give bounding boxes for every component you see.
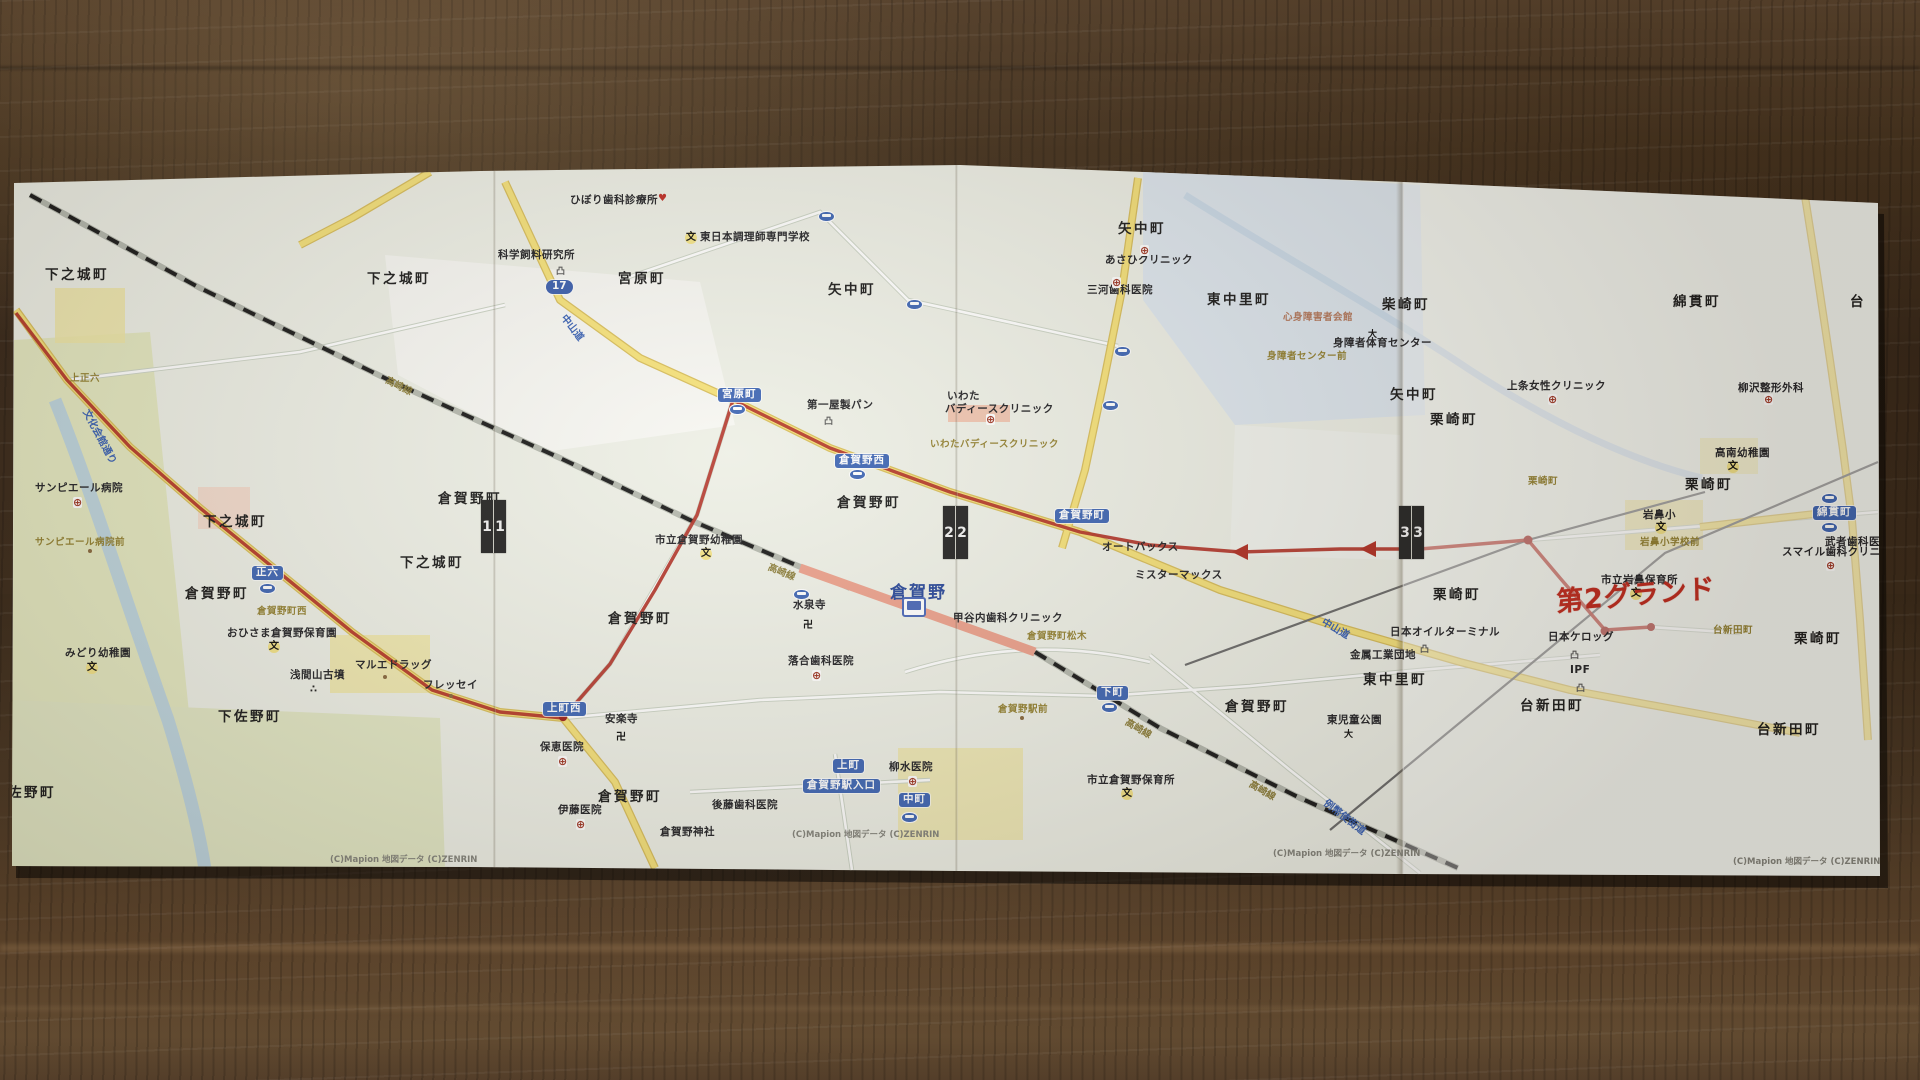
bus-stop-icon <box>729 404 746 415</box>
poi-label: フレッセイ <box>423 680 478 692</box>
bus-stop-name-label: 倉賀野町西 <box>257 607 307 617</box>
road-sign-badge: 綿貫町 <box>1813 506 1856 520</box>
fold-marker-digit: 1 <box>493 500 506 553</box>
poi-label: 柳水医院 <box>889 762 933 774</box>
temple-icon: 卍 <box>616 728 626 743</box>
poi-label: マルエドラッグ <box>355 660 432 672</box>
poi-label: 科学飼料研究所 <box>498 250 575 262</box>
bus-stop-name-label: 心身障害者会館 <box>1283 313 1353 323</box>
poi-label: 倉賀野神社 <box>660 827 715 839</box>
road-sign-badge: 上町 <box>833 759 864 773</box>
town-name-label: 下之城町 <box>203 515 267 530</box>
copyright-text: (C)Mapion 地図データ (C)ZENRIN <box>792 831 939 840</box>
poi-label: あさひクリニック <box>1105 255 1193 267</box>
poi-label: 東日本調理師専門学校 <box>700 232 810 244</box>
town-name-label: 東中里町 <box>1207 293 1271 308</box>
poi-label: 甲谷内歯科クリニック <box>953 613 1063 625</box>
school-icon: 文 <box>700 548 712 560</box>
hospital-icon: ⊕ <box>576 819 585 830</box>
bus-stop-name-label: いわたバディースクリニック <box>930 440 1059 450</box>
town-name-label: 下之城町 <box>45 268 109 283</box>
bus-stop-icon <box>849 469 866 480</box>
fold-marker-2: 22 <box>943 506 968 559</box>
town-name-label: 下佐野町 <box>218 710 282 725</box>
town-name-label: 栗崎町 <box>1430 413 1478 428</box>
hospital-icon: ⊕ <box>908 776 917 787</box>
poi-label: バディースクリニック <box>945 404 1054 416</box>
town-name-label: 東中里町 <box>1363 673 1427 688</box>
poi-label: サンピエール病院 <box>35 483 123 495</box>
road-sign-badge: 上町西 <box>543 702 586 716</box>
poi-label: 東児童公園 <box>1327 715 1382 727</box>
road-sign-badge: 下町 <box>1097 686 1128 700</box>
poi-label: 水泉寺 <box>793 600 826 612</box>
hospital-icon: ⊕ <box>812 670 821 681</box>
poi-label: 市立倉賀野保育所 <box>1087 775 1175 787</box>
bus-stop-icon <box>1102 400 1119 411</box>
park-icon: 大 <box>1344 727 1353 740</box>
school-icon: 文 <box>685 232 697 244</box>
fold-marker-digit: 2 <box>955 506 968 559</box>
poi-label: 保恵医院 <box>540 742 584 754</box>
poi-label: おひさま倉賀野保育園 <box>227 628 337 640</box>
bus-stop-name-label: 身障者センター前 <box>1267 352 1347 362</box>
bus-stop-icon <box>906 299 923 310</box>
poi-label: 金属工業団地 <box>1350 650 1416 662</box>
school-icon: 文 <box>1121 788 1133 800</box>
bus-stop-icon <box>901 812 918 823</box>
hospital-icon: ⊕ <box>1548 394 1557 405</box>
town-name-label: 柴崎町 <box>1382 298 1430 313</box>
poi-label: ミスターマックス <box>1135 570 1223 582</box>
copyright-text: (C)Mapion 地図データ (C)ZENRIN <box>1733 858 1880 867</box>
town-name-label: 栗崎町 <box>1685 478 1733 493</box>
school-icon: 文 <box>268 641 280 653</box>
poi-label: 岩鼻小 <box>1643 510 1676 522</box>
poi-label: 日本ケロッグ <box>1548 632 1614 644</box>
poi-dot-icon <box>449 694 453 698</box>
bus-stop-name-label: 栗崎町 <box>1528 477 1558 487</box>
town-name-label: 綿貫町 <box>1673 295 1721 310</box>
poi-label: 安楽寺 <box>605 714 638 726</box>
town-name-label: 矢中町 <box>828 283 876 298</box>
poi-dot-icon <box>88 549 92 553</box>
fold-marker-digit: 3 <box>1399 506 1411 559</box>
poi-label: ひぼり歯科診療所 <box>570 195 658 207</box>
hospital-icon: ⊕ <box>1764 394 1773 405</box>
road-sign-badge: 正六 <box>252 566 283 580</box>
poi-label: 日本オイルターミナル <box>1390 627 1500 639</box>
photo-of-printed-route-map: 下之城町下之城町宮原町矢中町矢中町下之城町下之城町倉賀野町倉賀野町倉賀野町倉賀野… <box>0 0 1920 1080</box>
bus-stop-icon <box>1821 493 1838 504</box>
bus-stop-name-label: 岩鼻小学校前 <box>1640 538 1700 548</box>
right-sheet-highlight <box>1403 160 1880 880</box>
bus-stop-icon <box>1114 346 1131 357</box>
town-name-label: 台新田町 <box>1757 723 1821 738</box>
school-icon: 文 <box>1727 461 1739 473</box>
factory-icon: 凸 <box>1570 648 1579 661</box>
town-name-label: 矢中町 <box>1118 222 1166 237</box>
gym-icon: 大 <box>1368 327 1377 340</box>
clinic-heart-icon: ♥ <box>658 193 667 204</box>
train-station-icon <box>902 597 926 617</box>
poi-label: 市立倉賀野幼稚園 <box>655 535 743 547</box>
town-name-label: 栗崎町 <box>1794 632 1842 647</box>
poi-label: いわた <box>947 391 980 403</box>
poi-label: 上条女性クリニック <box>1507 381 1606 393</box>
bus-stop-name-label: サンピエール病院前 <box>35 538 125 548</box>
town-name-label: 矢中町 <box>1390 388 1438 403</box>
town-name-label: 倉賀野町 <box>608 612 672 627</box>
road-sign-badge: 倉賀野駅入口 <box>803 779 880 793</box>
temple-icon: 卍 <box>803 616 813 631</box>
hospital-icon: ⊕ <box>986 414 995 425</box>
road-sign-badge: 倉賀野町 <box>1055 509 1109 523</box>
bus-stop-icon <box>1821 522 1838 533</box>
poi-label: 落合歯科医院 <box>788 656 854 668</box>
bus-stop-icon <box>818 211 835 222</box>
poi-label: IPF <box>1570 665 1590 677</box>
poi-label: オートバックス <box>1102 542 1179 554</box>
factory-icon: 凸 <box>1576 681 1585 694</box>
bus-stop-name-label: 上正六 <box>70 374 100 384</box>
bus-stop-icon <box>793 589 810 600</box>
copyright-text: (C)Mapion 地図データ (C)ZENRIN <box>1273 850 1420 859</box>
fold-marker-digit: 3 <box>1411 506 1424 559</box>
town-name-label: 倉賀野町 <box>1225 700 1289 715</box>
town-name-label: 倉賀野町 <box>598 790 662 805</box>
fold-marker-1: 11 <box>481 500 506 553</box>
fold-marker-digit: 1 <box>481 500 493 553</box>
school-icon: 文 <box>1655 522 1667 534</box>
poi-label: 伊藤医院 <box>558 805 602 817</box>
tumulus-icon: ∴ <box>310 684 317 695</box>
road-sign-badge: 倉賀野西 <box>835 454 889 468</box>
poi-label: 後藤歯科医院 <box>712 800 778 812</box>
road-sign-badge: 宮原町 <box>718 388 761 402</box>
fold-marker-3: 33 <box>1399 506 1424 559</box>
factory-icon: 凸 <box>1420 642 1429 655</box>
hospital-icon: ⊕ <box>558 756 567 767</box>
town-name-label: 倉賀野町 <box>185 587 249 602</box>
poi-label: みどり幼稚園 <box>65 648 131 660</box>
hospital-icon: ⊕ <box>1112 277 1121 288</box>
bus-stop-name-label: 倉賀野町松木 <box>1027 632 1087 642</box>
town-name-label: 栗崎町 <box>1433 588 1481 603</box>
poi-dot-icon <box>383 675 387 679</box>
bus-stop-icon <box>259 583 276 594</box>
town-name-label: 台新田町 <box>1520 699 1584 714</box>
poi-label: 第一屋製パン <box>807 400 874 412</box>
town-name-label: 下之城町 <box>367 272 431 287</box>
poi-label: 身障者体育センター <box>1333 338 1432 350</box>
town-name-label: 宮原町 <box>618 272 666 287</box>
copyright-text: (C)Mapion 地図データ (C)ZENRIN <box>330 856 477 865</box>
route-17-shield: 17 <box>546 280 573 294</box>
hospital-icon: ⊕ <box>1140 245 1149 256</box>
poi-dot-icon <box>1020 716 1024 720</box>
town-name-label: 倉賀野町 <box>837 496 901 511</box>
road-sign-badge: 中町 <box>899 793 930 807</box>
poi-label: 高南幼稚園 <box>1715 448 1770 460</box>
town-name-label: 台 <box>1850 295 1866 310</box>
factory-icon: 凸 <box>556 264 565 277</box>
hospital-icon: ⊕ <box>73 497 82 508</box>
bus-stop-name-label: 台新田町 <box>1713 626 1753 636</box>
hospital-icon: ⊕ <box>1826 560 1835 571</box>
poi-label: 浅間山古墳 <box>290 670 345 682</box>
factory-icon: 凸 <box>824 414 833 427</box>
fold-marker-digit: 2 <box>943 506 955 559</box>
bus-stop-icon <box>1101 702 1118 713</box>
bus-stop-name-label: 倉賀野駅前 <box>998 705 1048 715</box>
school-icon: 文 <box>86 662 98 674</box>
town-name-label: 下之城町 <box>400 556 464 571</box>
